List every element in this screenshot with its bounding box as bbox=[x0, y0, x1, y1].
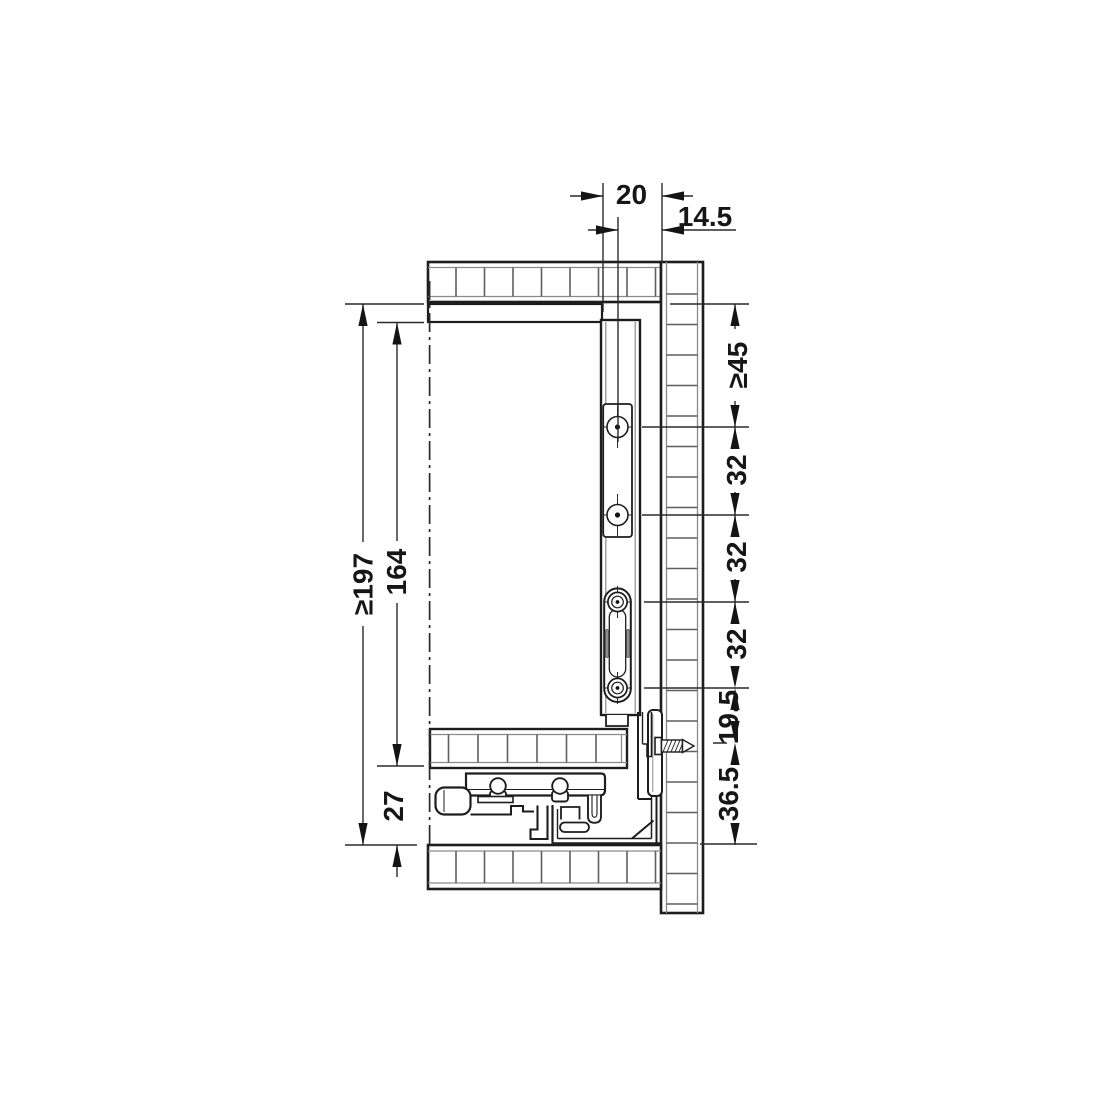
runner-pin-2 bbox=[552, 778, 568, 801]
cabinet-rail-bracket bbox=[553, 796, 661, 844]
rear-mounting-rail bbox=[601, 320, 640, 726]
dim-label-32b: 32 bbox=[721, 541, 752, 572]
dim-label-32c: 32 bbox=[721, 628, 752, 659]
dim-label-45: ≥45 bbox=[722, 342, 753, 389]
dim-label-20: 20 bbox=[616, 179, 647, 210]
adjustment-bracket bbox=[604, 586, 632, 704]
runner-detent bbox=[478, 797, 513, 803]
cabinet-top-panel bbox=[428, 262, 661, 302]
dim-label-27: 27 bbox=[378, 790, 409, 821]
drawer-runner bbox=[436, 774, 606, 840]
cabinet-bottom-panel bbox=[428, 845, 661, 889]
runner-body bbox=[466, 774, 605, 796]
dim-label-19-5: 19.5 bbox=[713, 690, 744, 745]
technical-drawing-page: 20 14.5 ≥197 164 27 ≥45 32 32 32 19.5 36… bbox=[0, 0, 1100, 1100]
dim-label-14-5: 14.5 bbox=[678, 201, 733, 232]
dim-label-32a: 32 bbox=[721, 454, 752, 485]
dim-label-36-5: 36.5 bbox=[713, 767, 744, 822]
runner-roller bbox=[560, 823, 589, 833]
technical-drawing: 20 14.5 ≥197 164 27 ≥45 32 32 32 19.5 36… bbox=[0, 0, 1100, 1100]
cabinet-back-panel bbox=[661, 262, 703, 913]
dim-label-164: 164 bbox=[381, 548, 412, 595]
runner-latch bbox=[588, 796, 601, 823]
dim-label-197: ≥197 bbox=[347, 553, 378, 615]
drawer-rear-panel-edge bbox=[428, 304, 602, 322]
gusset-diagonal bbox=[632, 821, 654, 839]
runner-end-cap bbox=[436, 788, 471, 815]
drawer-bottom-panel bbox=[430, 729, 627, 768]
